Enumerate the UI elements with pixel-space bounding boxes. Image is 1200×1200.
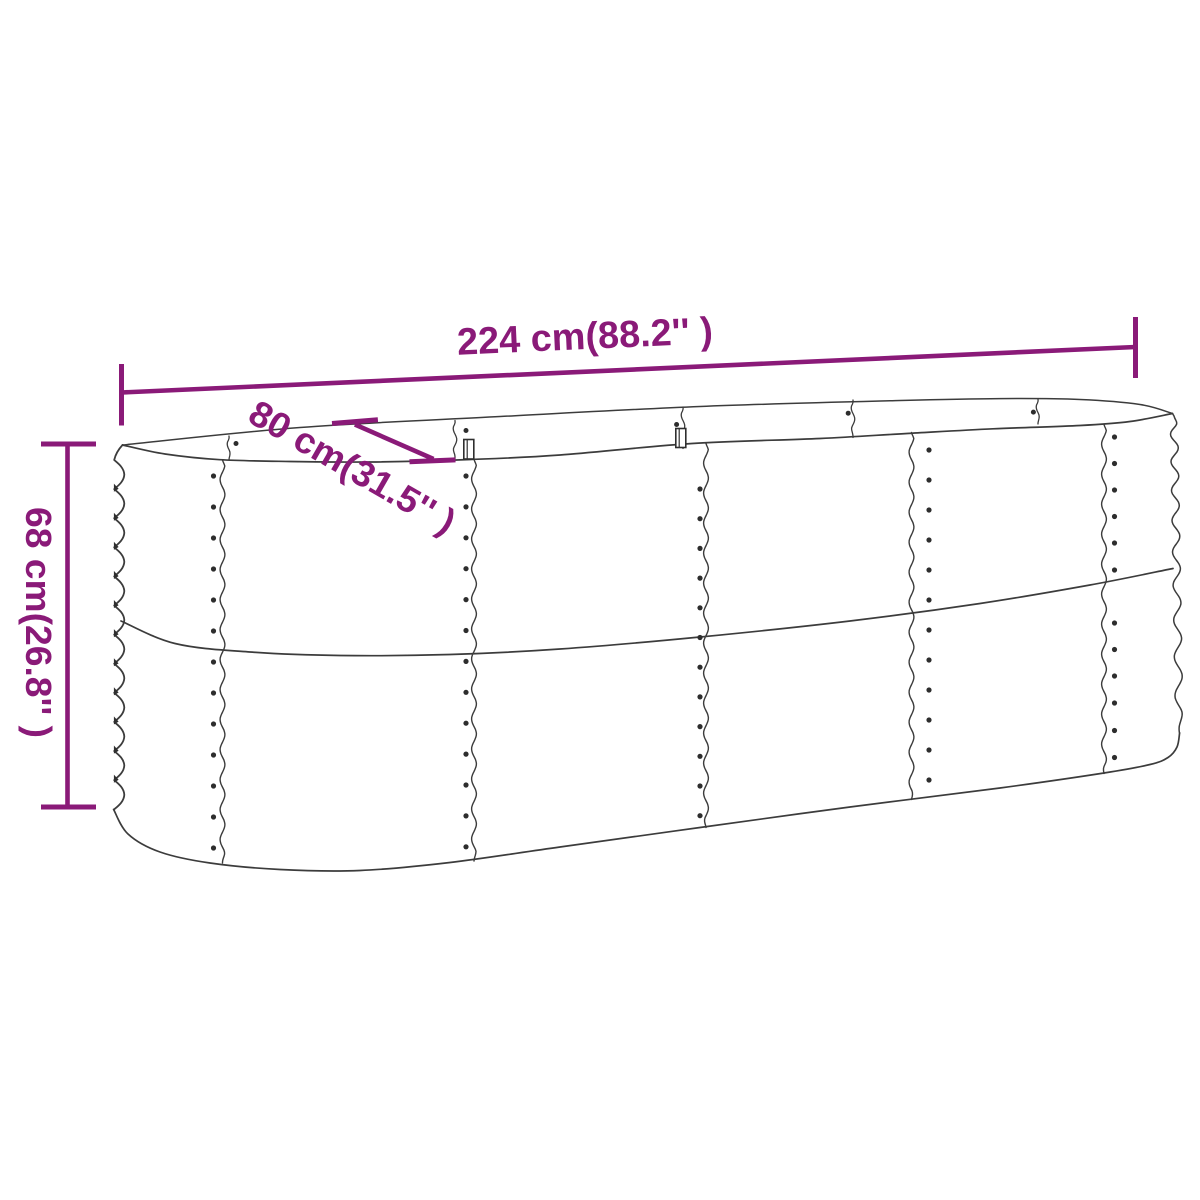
svg-text:68 cm(26.8'' ): 68 cm(26.8'' ) [18,507,59,738]
